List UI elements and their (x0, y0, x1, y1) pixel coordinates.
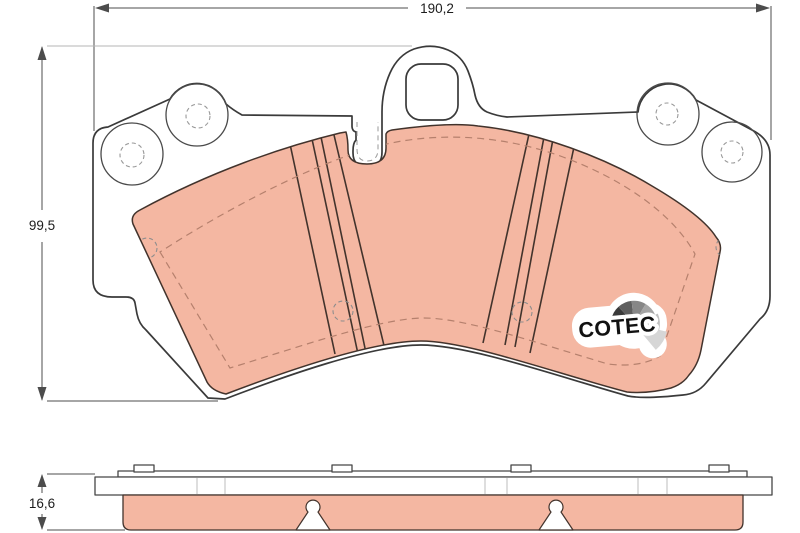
technical-drawing: COTEC 190,2 (0, 0, 800, 533)
dimension-thickness-label: 16,6 (29, 496, 55, 511)
shim-layer (118, 471, 747, 477)
spring-tab (134, 465, 154, 472)
arrow-right-icon (756, 4, 770, 13)
side-view (95, 465, 772, 530)
friction-side (123, 495, 743, 530)
arrow-up-icon (38, 46, 47, 60)
arrow-left-icon (95, 4, 109, 13)
arrow-down-icon (38, 387, 47, 401)
dimension-width-label: 190,2 (420, 1, 454, 16)
spring-tab (709, 465, 729, 472)
spring-tab (511, 465, 531, 472)
dimension-height-label: 99,5 (29, 218, 55, 233)
spring-tab (332, 465, 352, 472)
front-view: COTEC (93, 46, 770, 399)
retainer-tab-hole (406, 64, 458, 120)
arrow-down-icon (38, 517, 47, 530)
page: COTEC 190,2 (0, 0, 800, 533)
arrow-up-icon (38, 474, 47, 487)
wear-slot-dashed (357, 122, 378, 161)
